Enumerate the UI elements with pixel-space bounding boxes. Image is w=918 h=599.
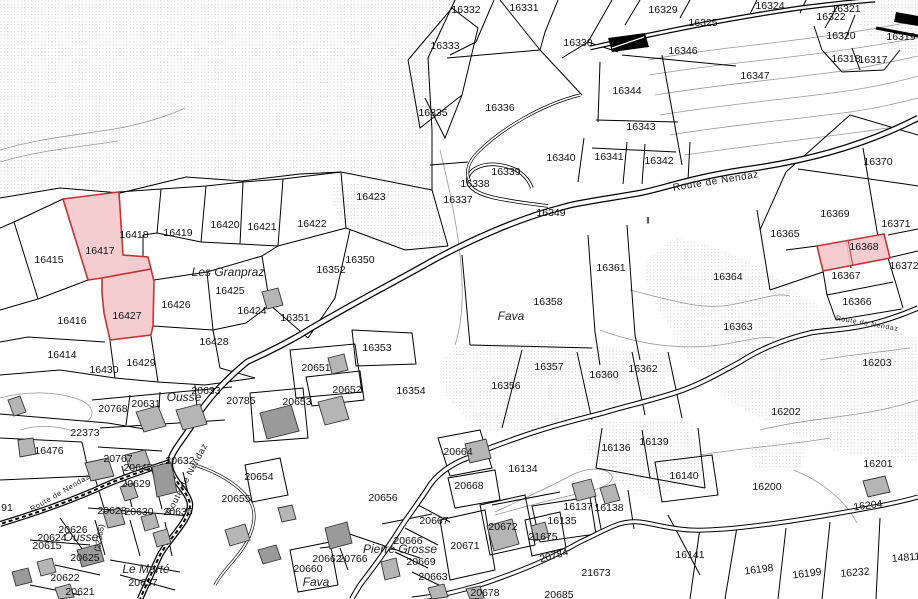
parcel-label-16429[interactable]: 16429 xyxy=(126,358,155,369)
parcel-label-16331[interactable]: 16331 xyxy=(509,3,538,14)
parcel-label-16367[interactable]: 16367 xyxy=(831,271,860,282)
parcel-label-16426[interactable]: 16426 xyxy=(161,300,190,311)
labels-layer: 1633216331163291632416325163211632216320… xyxy=(0,0,918,599)
parcel-label-16200[interactable]: 16200 xyxy=(752,482,781,493)
parcel-label-16329[interactable]: 16329 xyxy=(648,5,677,16)
parcel-label-16351[interactable]: 16351 xyxy=(280,313,309,324)
parcel-label-16423[interactable]: 16423 xyxy=(356,192,385,203)
parcel-label-16349[interactable]: 16349 xyxy=(536,208,565,219)
parcel-label-16371[interactable]: 16371 xyxy=(881,219,910,230)
parcel-label-16325[interactable]: 16325 xyxy=(688,18,717,29)
locality-label: Ousse xyxy=(64,531,99,543)
parcel-label-21673[interactable]: 21673 xyxy=(581,568,610,579)
parcel-label-22373[interactable]: 22373 xyxy=(70,428,99,439)
parcel-label-16330[interactable]: 16330 xyxy=(563,38,592,49)
parcel-label-20631[interactable]: 20631 xyxy=(131,399,160,410)
parcel-label-16372[interactable]: 16372 xyxy=(889,261,918,272)
parcel-label-20660[interactable]: 20660 xyxy=(293,564,322,575)
parcel-label-16336[interactable]: 16336 xyxy=(485,103,514,114)
parcel-label-20630[interactable]: 20630 xyxy=(124,507,153,518)
parcel-label-16368[interactable]: 16368 xyxy=(849,242,878,253)
parcel-label-20671[interactable]: 20671 xyxy=(450,541,479,552)
parcel-label-16419[interactable]: 16419 xyxy=(163,228,192,239)
parcel-label-16420[interactable]: 16420 xyxy=(210,220,239,231)
parcel-label-20645[interactable]: 20645 xyxy=(123,463,152,474)
parcel-label-20784[interactable]: 20784 xyxy=(539,547,570,565)
parcel-label-16141[interactable]: 16141 xyxy=(675,550,704,561)
parcel-label-16318[interactable]: 16318 xyxy=(831,54,860,65)
parcel-label-20655[interactable]: 20655 xyxy=(221,494,250,505)
parcel-label-20628[interactable]: 20628 xyxy=(97,506,126,517)
parcel-label-16415[interactable]: 16415 xyxy=(34,255,63,266)
parcel-label-16340[interactable]: 16340 xyxy=(546,153,575,164)
parcel-label-16350[interactable]: 16350 xyxy=(345,255,374,266)
map-symbol: ‖ xyxy=(646,217,650,226)
locality-label: Fava xyxy=(498,310,525,322)
parcel-label-20672[interactable]: 20672 xyxy=(488,522,517,533)
road-name-label: Route de Nendaz xyxy=(29,473,91,513)
parcel-label-16232[interactable]: 16232 xyxy=(840,566,870,579)
parcel-label-16343[interactable]: 16343 xyxy=(626,122,655,133)
parcel-label-16324[interactable]: 16324 xyxy=(755,1,784,12)
parcel-label-20662[interactable]: 20662 xyxy=(312,554,341,565)
parcel-label-16134[interactable]: 16134 xyxy=(508,464,537,475)
parcel-label-16364[interactable]: 16364 xyxy=(713,272,742,283)
parcel-label-21675[interactable]: 21675 xyxy=(528,532,557,543)
locality-label: Le Marté xyxy=(122,563,169,575)
parcel-label-20653[interactable]: 20653 xyxy=(282,397,311,408)
parcel-label-20663[interactable]: 20663 xyxy=(418,572,447,583)
parcel-label-16317[interactable]: 16317 xyxy=(858,55,887,66)
parcel-label-16139[interactable]: 16139 xyxy=(639,437,668,448)
parcel-label-16320[interactable]: 16320 xyxy=(826,31,855,42)
parcel-label-16341[interactable]: 16341 xyxy=(594,152,623,163)
parcel-label-20629[interactable]: 20629 xyxy=(121,479,150,490)
parcel-label-16202[interactable]: 16202 xyxy=(771,407,800,418)
parcel-label-16140[interactable]: 16140 xyxy=(669,471,698,482)
parcel-label-16347[interactable]: 16347 xyxy=(740,71,769,82)
parcel-label-16346[interactable]: 16346 xyxy=(668,46,697,57)
parcel-label-20656[interactable]: 20656 xyxy=(368,493,397,504)
parcel-label-16476[interactable]: 16476 xyxy=(34,446,63,457)
parcel-label-16416[interactable]: 16416 xyxy=(57,316,86,327)
parcel-label-16354[interactable]: 16354 xyxy=(396,386,425,397)
parcel-label-91[interactable]: 91 xyxy=(1,503,13,514)
parcel-label-16203[interactable]: 16203 xyxy=(862,358,891,369)
parcel-label-16424[interactable]: 16424 xyxy=(237,306,266,317)
parcel-label-16138[interactable]: 16138 xyxy=(594,503,623,514)
parcel-label-16319[interactable]: 16319 xyxy=(886,32,915,43)
parcel-label-20785[interactable]: 20785 xyxy=(226,396,255,407)
locality-label: Pierre Grosse xyxy=(363,543,437,555)
parcel-label-16335[interactable]: 16335 xyxy=(418,108,447,119)
parcel-label-16417[interactable]: 16417 xyxy=(85,246,114,257)
parcel-label-20637[interactable]: 20637 xyxy=(128,578,157,589)
parcel-label-16337[interactable]: 16337 xyxy=(443,195,472,206)
road-name-label: Route de Nendaz xyxy=(835,315,899,333)
parcel-label-16363[interactable]: 16363 xyxy=(723,322,752,333)
parcel-label-16199[interactable]: 16199 xyxy=(792,567,822,581)
parcel-label-14811[interactable]: 14811 xyxy=(891,552,918,565)
parcel-label-20651[interactable]: 20651 xyxy=(301,363,330,374)
parcel-label-16369[interactable]: 16369 xyxy=(820,209,849,220)
parcel-label-20652[interactable]: 20652 xyxy=(332,385,361,396)
parcel-label-16356[interactable]: 16356 xyxy=(491,381,520,392)
parcel-label-20625[interactable]: 20625 xyxy=(70,553,99,564)
parcel-label-16422[interactable]: 16422 xyxy=(297,219,326,230)
parcel-label-16344[interactable]: 16344 xyxy=(612,86,641,97)
road-name-label: Route de Nendaz xyxy=(672,170,759,193)
locality-label: Les Granpraz xyxy=(192,266,265,278)
parcel-label-16428[interactable]: 16428 xyxy=(199,337,228,348)
parcel-label-16414[interactable]: 16414 xyxy=(47,350,76,361)
parcel-label-20768[interactable]: 20768 xyxy=(98,404,127,415)
parcel-label-20622[interactable]: 20622 xyxy=(50,573,79,584)
cadastral-map-canvas[interactable]: 1633216331163291632416325163211632216320… xyxy=(0,0,918,599)
parcel-label-20685[interactable]: 20685 xyxy=(544,590,573,599)
parcel-label-20664[interactable]: 20664 xyxy=(443,447,472,458)
parcel-label-16430[interactable]: 16430 xyxy=(89,365,118,376)
parcel-label-16425[interactable]: 16425 xyxy=(215,286,244,297)
parcel-label-20654[interactable]: 20654 xyxy=(244,472,273,483)
parcel-label-16357[interactable]: 16357 xyxy=(534,362,563,373)
parcel-label-16358[interactable]: 16358 xyxy=(533,297,562,308)
parcel-label-16342[interactable]: 16342 xyxy=(644,156,673,167)
locality-label: Fava xyxy=(303,576,330,588)
parcel-label-16427[interactable]: 16427 xyxy=(112,311,141,322)
parcel-label-16333[interactable]: 16333 xyxy=(430,41,459,52)
parcel-label-16353[interactable]: 16353 xyxy=(362,343,391,354)
parcel-label-16361[interactable]: 16361 xyxy=(596,263,625,274)
parcel-label-16362[interactable]: 16362 xyxy=(628,364,657,375)
parcel-label-16339[interactable]: 16339 xyxy=(491,167,520,178)
parcel-label-16365[interactable]: 16365 xyxy=(770,229,799,240)
parcel-label-16322[interactable]: 16322 xyxy=(816,12,845,23)
parcel-label-20669[interactable]: 20669 xyxy=(406,557,435,568)
parcel-label-20668[interactable]: 20668 xyxy=(454,481,483,492)
locality-label: Ousse xyxy=(167,391,202,403)
parcel-label-20621[interactable]: 20621 xyxy=(65,587,94,598)
parcel-label-16366[interactable]: 16366 xyxy=(842,297,871,308)
parcel-label-16352[interactable]: 16352 xyxy=(316,265,345,276)
parcel-label-20615[interactable]: 20615 xyxy=(32,541,61,552)
parcel-label-16332[interactable]: 16332 xyxy=(451,5,480,16)
parcel-label-16198[interactable]: 16198 xyxy=(744,563,774,577)
parcel-label-16360[interactable]: 16360 xyxy=(589,370,618,381)
parcel-label-20667[interactable]: 20667 xyxy=(419,516,448,527)
parcel-label-16204[interactable]: 16204 xyxy=(853,499,883,513)
parcel-label-16338[interactable]: 16338 xyxy=(460,179,489,190)
parcel-label-16136[interactable]: 16136 xyxy=(601,443,630,454)
parcel-label-16201[interactable]: 16201 xyxy=(863,459,892,470)
parcel-label-16418[interactable]: 16418 xyxy=(119,230,148,241)
parcel-label-16137[interactable]: 16137 xyxy=(563,502,592,513)
parcel-label-16421[interactable]: 16421 xyxy=(247,222,276,233)
parcel-label-16370[interactable]: 16370 xyxy=(863,157,892,168)
parcel-label-16135[interactable]: 16135 xyxy=(547,516,576,527)
parcel-label-20678[interactable]: 20678 xyxy=(470,588,499,599)
